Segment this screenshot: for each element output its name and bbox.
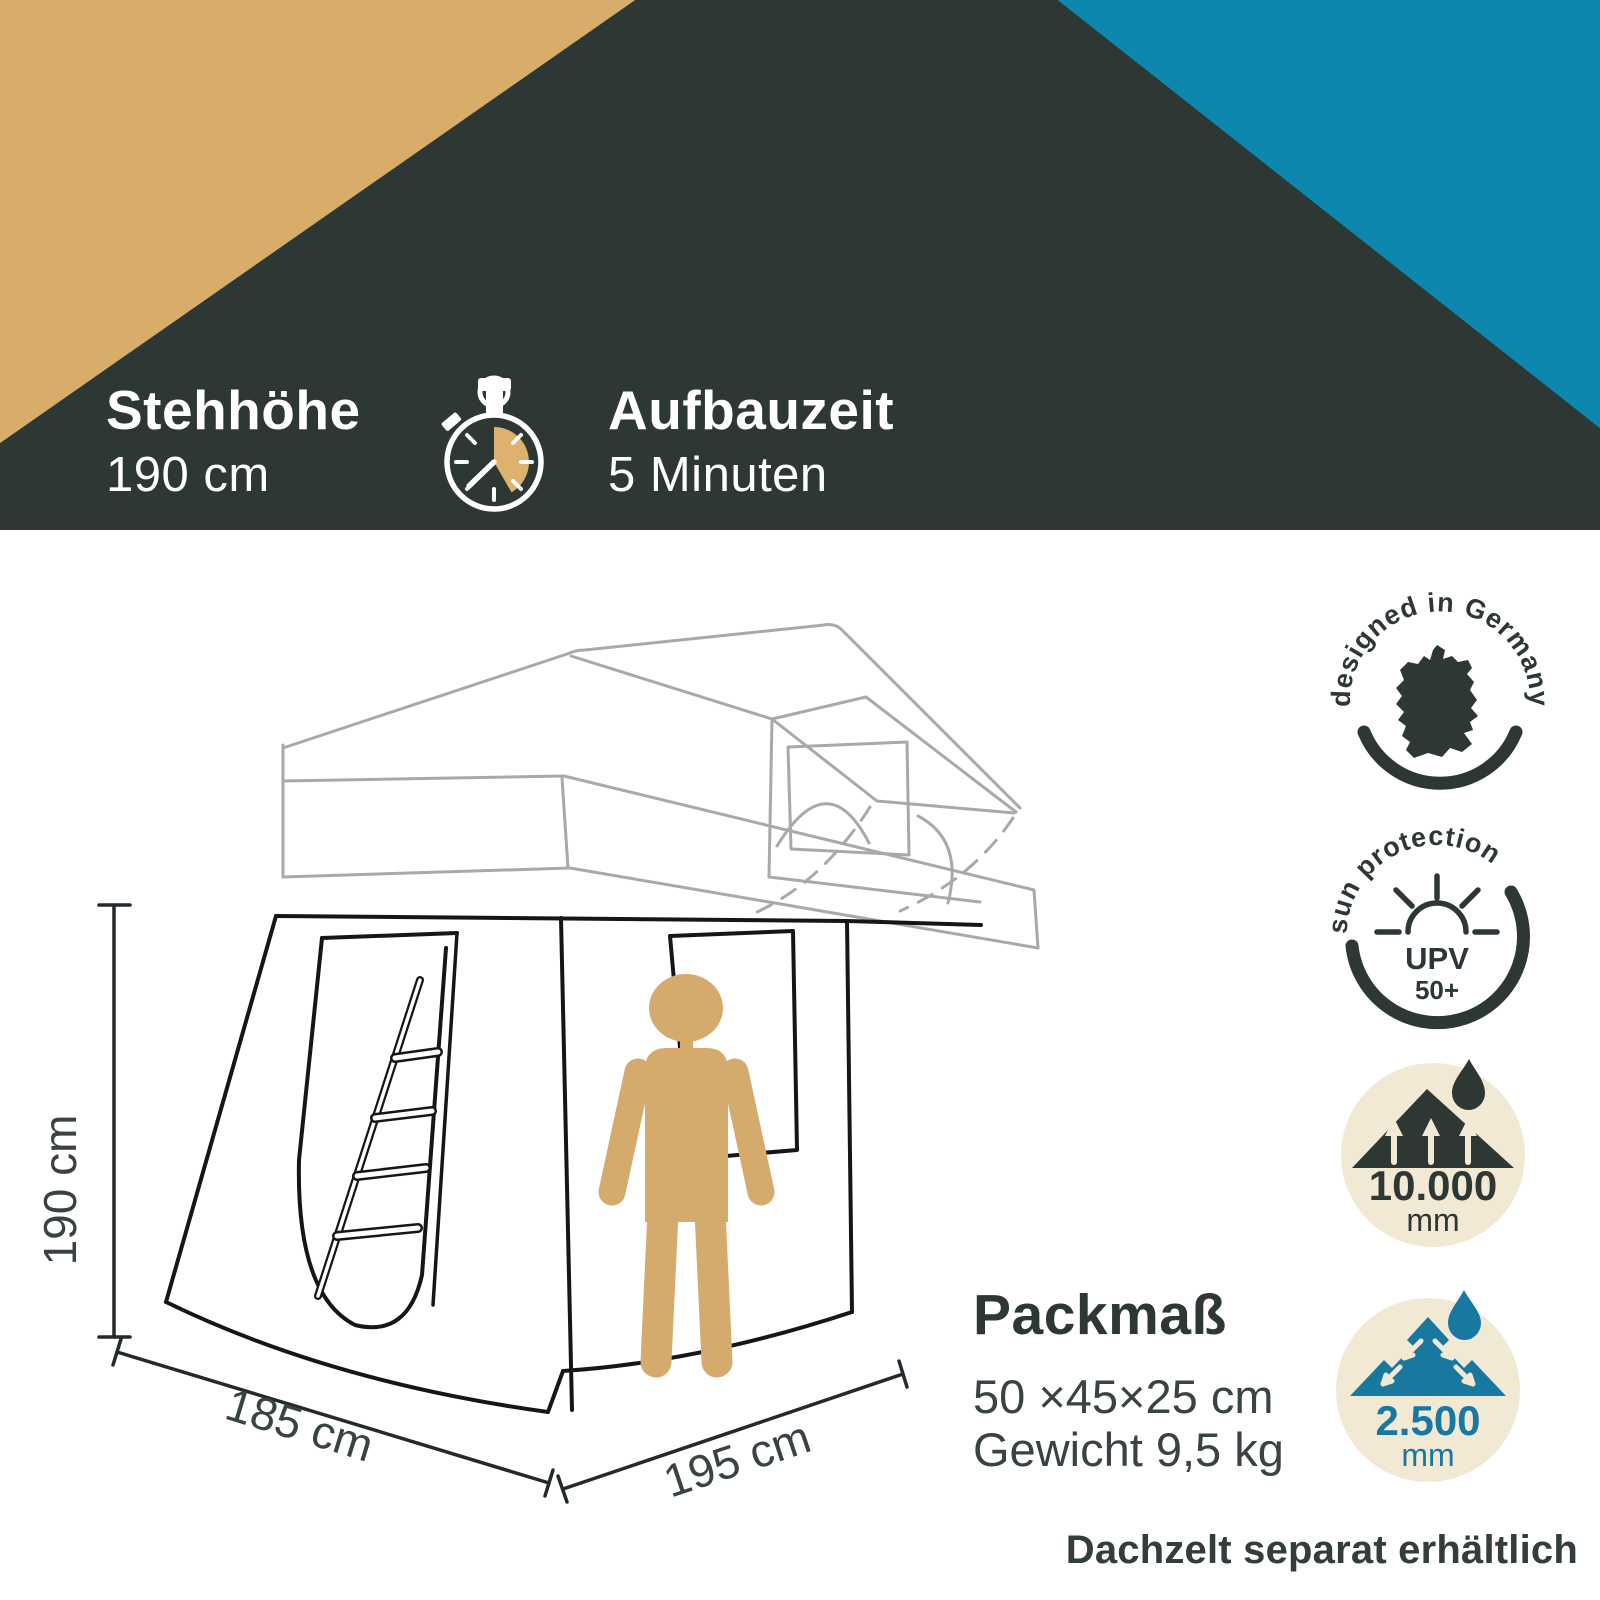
pack-size-value: 50 ×45×25 cm	[973, 1370, 1284, 1423]
width-dimension-label: 195 cm	[657, 1410, 817, 1507]
annex-tent-drawing	[166, 916, 981, 1412]
waterproof-outer-badge: 10.000 mm	[1341, 1059, 1525, 1247]
infographic-art: 190 cm 185 cm 195 cm designed in Germany…	[0, 0, 1600, 1600]
footer-note: Dachzelt separat erhältlich	[1066, 1528, 1578, 1573]
waterproof-inner-badge: 2.500 mm	[1336, 1290, 1520, 1482]
sun-icon	[1377, 876, 1497, 932]
roof-tent-drawing	[283, 625, 1038, 948]
pack-size-title: Packmaß	[973, 1282, 1284, 1348]
sun-protection-badge: sun protection UPV 50+	[1323, 821, 1524, 1023]
stopwatch-icon	[441, 378, 541, 509]
height-dimension-label: 190 cm	[34, 1115, 86, 1266]
dimension-lines	[99, 905, 907, 1502]
designed-in-germany-badge: designed in Germany	[1326, 587, 1554, 783]
upv-label: UPV	[1405, 941, 1469, 976]
ladder-drawing	[318, 980, 438, 1296]
germany-map-icon	[1396, 645, 1478, 758]
pack-size-block: Packmaß 50 ×45×25 cm Gewicht 9,5 kg	[973, 1282, 1284, 1476]
infographic-canvas: Stehhöhe 190 cm Aufbauzeit 5 Minuten	[0, 0, 1600, 1600]
upv-value-label: 50+	[1415, 975, 1459, 1005]
depth-dimension-label: 185 cm	[220, 1378, 379, 1472]
person-silhouette	[612, 974, 761, 1362]
waterproof-inner-unit: mm	[1401, 1437, 1454, 1473]
tent-illustration	[166, 625, 1038, 1412]
pack-weight-value: Gewicht 9,5 kg	[973, 1423, 1284, 1476]
waterproof-outer-unit: mm	[1406, 1202, 1459, 1238]
